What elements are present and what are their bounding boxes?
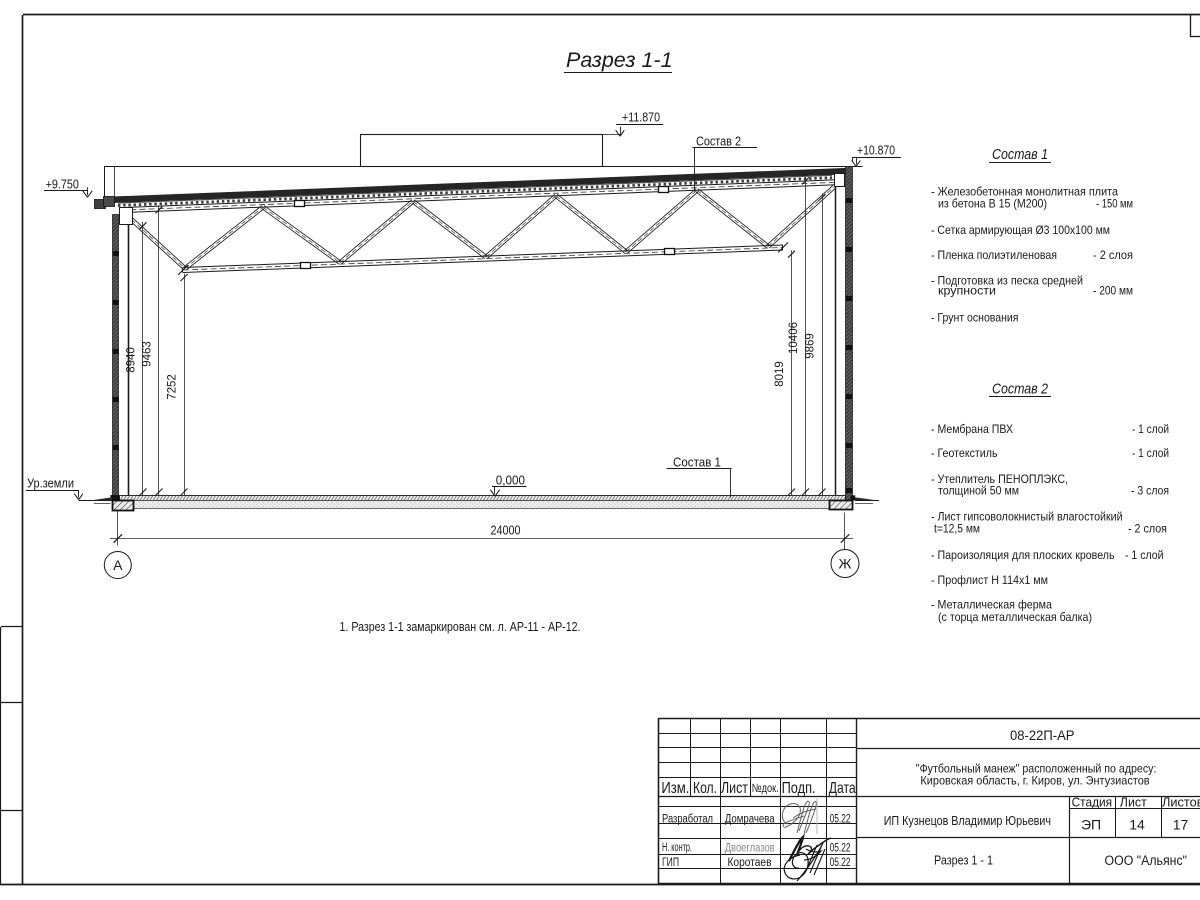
svg-text:05.22: 05.22 bbox=[830, 857, 851, 869]
svg-text:0,000: 0,000 bbox=[496, 474, 525, 488]
svg-text:Ур.земли: Ур.земли bbox=[27, 477, 74, 491]
svg-text:Лист: Лист bbox=[1120, 795, 1147, 810]
svg-text:+9.750: +9.750 bbox=[46, 178, 79, 192]
svg-text:1. Разрез 1-1 замаркирован см.: 1. Разрез 1-1 замаркирован см. л. АР-11 … bbox=[340, 620, 581, 634]
svg-text:- 2 слоя: - 2 слоя bbox=[1128, 522, 1167, 536]
svg-text:17: 17 bbox=[1173, 817, 1189, 833]
svg-text:8019: 8019 bbox=[774, 361, 786, 387]
svg-text:14: 14 bbox=[1129, 817, 1145, 833]
svg-text:- 1 слой: - 1 слой bbox=[1132, 422, 1169, 436]
svg-text:10406: 10406 bbox=[788, 322, 800, 354]
svg-text:Изм.: Изм. bbox=[661, 780, 689, 797]
svg-text:08-22П-АР: 08-22П-АР bbox=[1010, 728, 1075, 743]
svg-text:- Геотекстиль: - Геотекстиль bbox=[931, 446, 998, 460]
svg-text:Подп.: Подп. bbox=[782, 780, 816, 797]
svg-text:- Пароизоляция для плоских кро: - Пароизоляция для плоских кровель bbox=[931, 548, 1115, 562]
svg-text:- 1 слой: - 1 слой bbox=[1132, 446, 1169, 460]
svg-text:- 1 слой: - 1 слой bbox=[1125, 548, 1164, 562]
svg-text:Н. контр.: Н. контр. bbox=[662, 842, 692, 854]
svg-text:ГИП: ГИП bbox=[662, 857, 679, 869]
svg-text:Дата: Дата bbox=[829, 780, 856, 797]
svg-text:Состав 2: Состав 2 bbox=[992, 382, 1048, 398]
svg-text:Листов: Листов bbox=[1162, 795, 1200, 810]
svg-text:ИП Кузнецов Владимир Юрьевич: ИП Кузнецов Владимир Юрьевич bbox=[884, 814, 1051, 828]
svg-text:Разрез 1-1: Разрез 1-1 bbox=[566, 48, 673, 72]
svg-text:05.22: 05.22 bbox=[830, 843, 851, 855]
svg-text:9463: 9463 bbox=[142, 341, 154, 367]
svg-text:- Пленка полиэтиленовая: - Пленка полиэтиленовая bbox=[931, 248, 1057, 262]
svg-text:- 150 мм: - 150 мм bbox=[1096, 197, 1133, 211]
svg-text:- Сетка армирующая Ø3 100х100: - Сетка армирующая Ø3 100х100 мм bbox=[931, 223, 1110, 237]
svg-text:А: А bbox=[113, 557, 123, 573]
svg-text:+10.870: +10.870 bbox=[857, 144, 895, 158]
svg-text:(с торца металлическая балка): (с торца металлическая балка) bbox=[938, 610, 1092, 624]
svg-text:Ж: Ж bbox=[839, 556, 852, 572]
svg-text:ЭП: ЭП bbox=[1081, 817, 1101, 833]
svg-text:- 200 мм: - 200 мм bbox=[1093, 284, 1133, 298]
svg-text:Кировская область, г. Киров, у: Кировская область, г. Киров, ул. Энтузиа… bbox=[920, 774, 1149, 788]
svg-text:24000: 24000 bbox=[491, 524, 521, 538]
svg-text:- 2 слоя: - 2 слоя bbox=[1093, 248, 1133, 262]
svg-text:Состав 1: Состав 1 bbox=[992, 147, 1048, 163]
svg-text:Разработал: Разработал bbox=[662, 813, 713, 825]
svg-text:Разрез 1 - 1: Разрез 1 - 1 bbox=[934, 854, 993, 868]
svg-text:Домрачева: Домрачева bbox=[725, 813, 775, 825]
svg-text:8940: 8940 bbox=[126, 347, 138, 373]
svg-text:из бетона В 15 (М200): из бетона В 15 (М200) bbox=[938, 197, 1047, 211]
svg-text:Коротаев: Коротаев bbox=[728, 857, 772, 869]
svg-text:Лист: Лист bbox=[721, 780, 749, 797]
svg-text:- Профлист Н 114х1 мм: - Профлист Н 114х1 мм bbox=[931, 573, 1048, 587]
svg-text:№док.: №док. bbox=[752, 781, 779, 795]
svg-text:- 3 слоя: - 3 слоя bbox=[1131, 484, 1169, 498]
svg-text:- Грунт основания: - Грунт основания bbox=[931, 311, 1019, 325]
svg-text:t=12,5 мм: t=12,5 мм bbox=[934, 522, 980, 536]
svg-text:7252: 7252 bbox=[167, 374, 179, 400]
svg-text:крупности: крупности bbox=[938, 284, 996, 298]
svg-text:Двоеглазов: Двоеглазов bbox=[725, 843, 775, 855]
svg-text:+11.870: +11.870 bbox=[622, 111, 660, 125]
svg-text:Состав 1: Состав 1 bbox=[673, 456, 721, 470]
svg-text:толщиной 50 мм: толщиной 50 мм bbox=[938, 484, 1019, 498]
svg-text:05.22: 05.22 bbox=[830, 813, 851, 825]
svg-text:Состав 2: Состав 2 bbox=[696, 135, 741, 149]
svg-text:Стадия: Стадия bbox=[1072, 795, 1113, 810]
svg-text:ООО "Альянс": ООО "Альянс" bbox=[1105, 853, 1188, 868]
svg-text:9869: 9869 bbox=[805, 333, 817, 359]
svg-text:- Мембрана ПВХ: - Мембрана ПВХ bbox=[931, 422, 1013, 436]
svg-text:Кол.: Кол. bbox=[693, 780, 717, 797]
